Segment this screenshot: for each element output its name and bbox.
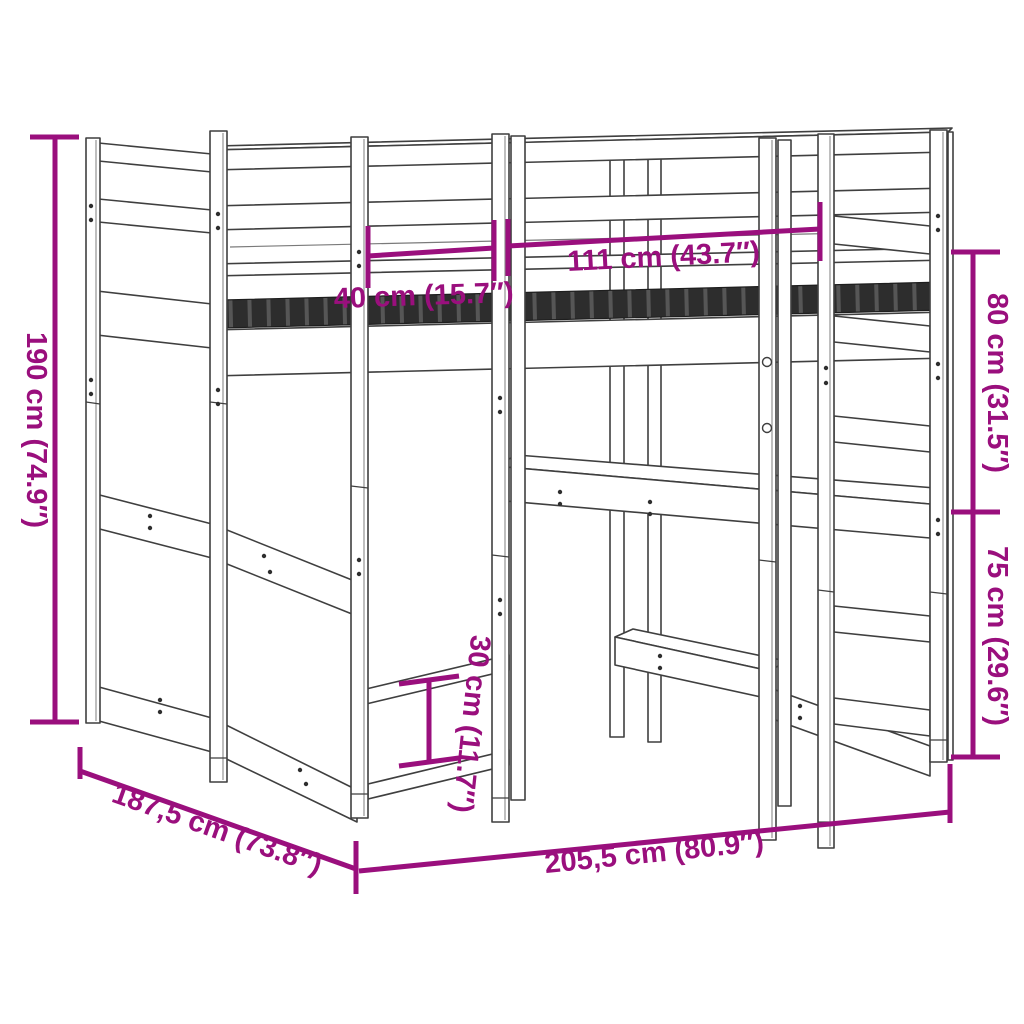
keyhole-fitting — [763, 424, 772, 433]
screw-dot — [89, 392, 93, 396]
dimension-label-depth: 187,5 cm (73.8″) — [108, 778, 326, 882]
screw-dot — [357, 250, 361, 254]
ladder-rung — [834, 606, 930, 642]
screw-dot — [824, 381, 828, 385]
dimension-right-upper-80: 80 cm (31.5″) — [951, 252, 1013, 512]
screw-dot — [648, 500, 652, 504]
screw-dot — [357, 572, 361, 576]
screw-dot — [936, 214, 940, 218]
center-right-post-pair — [759, 138, 791, 840]
screw-dot — [936, 518, 940, 522]
center-back-rail-lower — [368, 750, 509, 799]
dimension-right-lower-75: 75 cm (29.6″) — [951, 512, 1013, 757]
screw-dot — [158, 710, 162, 714]
screw-dot — [89, 378, 93, 382]
left-frame-rail — [88, 290, 212, 348]
screw-dot — [498, 598, 502, 602]
ladder-rung — [834, 416, 930, 452]
screw-dot — [498, 410, 502, 414]
screw-dot — [268, 570, 272, 574]
back-left-post — [86, 138, 100, 723]
ladder-rung — [834, 216, 930, 254]
left-top-rail — [88, 142, 212, 172]
screw-dot — [89, 218, 93, 222]
screw-dot — [304, 782, 308, 786]
screw-dot — [148, 526, 152, 530]
screw-dot — [498, 612, 502, 616]
left-mid-rail — [88, 198, 212, 233]
screw-dot — [648, 512, 652, 516]
dimension-label-80: 80 cm (31.5″) — [981, 293, 1013, 473]
left-bottom-rail — [88, 684, 212, 752]
screw-dot — [824, 366, 828, 370]
screw-dot — [216, 212, 220, 216]
mid-left-post — [351, 137, 368, 818]
product-dimension-diagram: 190 cm (74.9″) 40 cm (15.7″) 111 cm (43.… — [0, 0, 1024, 1024]
screw-dot — [262, 554, 266, 558]
screw-dot — [357, 558, 361, 562]
screw-dot — [498, 396, 502, 400]
left-desk-apron — [88, 492, 212, 558]
screw-dot — [936, 362, 940, 366]
dimension-label-30: 30 cm (11.7″) — [446, 634, 496, 815]
screw-dot — [357, 264, 361, 268]
dimension-label-width: 205,5 cm (80.9″) — [543, 826, 765, 880]
screw-dot — [216, 402, 220, 406]
dimension-label-40: 40 cm (15.7″) — [333, 277, 514, 315]
screw-dot — [658, 654, 662, 658]
dimension-line — [368, 248, 494, 256]
screw-dot — [148, 514, 152, 518]
screw-dot — [936, 532, 940, 536]
screw-dot — [798, 716, 802, 720]
screw-dot — [216, 226, 220, 230]
screw-dot — [89, 204, 93, 208]
screw-dot — [798, 704, 802, 708]
screw-dot — [936, 228, 940, 232]
keyhole-fitting — [763, 358, 772, 367]
screw-dot — [658, 666, 662, 670]
posts — [86, 130, 953, 848]
screw-dot — [558, 490, 562, 494]
screw-dot — [158, 698, 162, 702]
screw-dot — [216, 388, 220, 392]
loft-bed-diagram-canvas: 190 cm (74.9″) 40 cm (15.7″) 111 cm (43.… — [0, 0, 1024, 1024]
dimension-label-height: 190 cm (74.9″) — [20, 332, 52, 528]
side-bottom-rail — [212, 718, 357, 822]
side-desk-apron — [212, 524, 357, 616]
dimension-label-75: 75 cm (29.6″) — [981, 546, 1013, 726]
screw-dot — [936, 376, 940, 380]
dimension-width-205: 205,5 cm (80.9″) — [359, 764, 950, 880]
dimension-height-190: 190 cm (74.9″) — [20, 137, 79, 722]
screw-dot — [298, 768, 302, 772]
right-end-post — [930, 130, 953, 762]
screw-dot — [558, 502, 562, 506]
loft-bed-line-drawing — [86, 128, 953, 848]
